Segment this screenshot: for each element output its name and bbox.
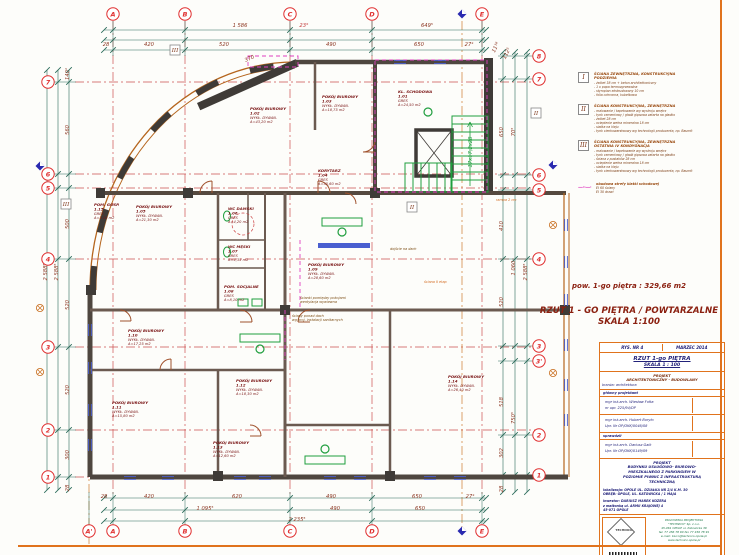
dim-text: 518 (499, 396, 505, 407)
svg-text:3: 3 (537, 342, 542, 350)
dim-text: 500 (65, 218, 71, 229)
room-label-1.07: WC MĘSKI1.07GRESA=4,35 m2 (227, 244, 251, 262)
dim-text: 27⁴ (466, 494, 476, 500)
person-2-line2: Upr. Nr OP/OKK/0046/08 (605, 424, 690, 430)
secondary-axis-marker (549, 369, 556, 376)
signature-cell-3 (692, 441, 721, 456)
svg-text:C: C (288, 527, 293, 535)
svg-text:A=35,60 m2: A=35,60 m2 (317, 182, 341, 186)
svg-text:1.04: 1.04 (318, 173, 328, 178)
room-label-1.06: WC DAMSKI1.06GRESA=4,20 m2 (227, 206, 254, 224)
annotation-note: rampa 2 cm (496, 198, 517, 202)
svg-text:wentylacja wywiewna: wentylacja wywiewna (300, 300, 337, 304)
svg-text:ściana II etap: ściana II etap (424, 280, 447, 284)
dim-text: 300 (65, 449, 71, 460)
person-2-name: mgr inż.arch. Hubert Boryło Upr. Nr OP/O… (603, 416, 692, 431)
title-line-2: SKALA 1:100 (538, 317, 720, 328)
dim-text: 28 (65, 484, 71, 491)
annotation-note: ściana II etap (424, 280, 447, 284)
dim-text: 520 (499, 296, 505, 307)
svg-text:A': A' (84, 527, 92, 535)
svg-text:A=4,20 m2: A=4,20 m2 (227, 220, 249, 224)
axis-bubble-left-7: 7 (42, 76, 54, 88)
svg-text:E: E (480, 10, 485, 18)
dim-text: 650 (415, 506, 426, 512)
role-checker: sprawdził (600, 433, 724, 440)
svg-text:A=12,60 m2: A=12,60 m2 (212, 454, 236, 458)
svg-text:4: 4 (537, 255, 542, 263)
svg-text:5: 5 (46, 184, 51, 192)
note-texts: ścianki pomiędzy pokojamiwentylacja wywi… (292, 198, 517, 322)
svg-text:1.11: 1.11 (112, 405, 122, 410)
axis-bubble-right-6: 6 (533, 169, 545, 181)
floor-area-text: pow. 1-go piętra : 329,66 m2 (538, 282, 720, 290)
svg-text:1.02: 1.02 (250, 111, 260, 116)
project-description: PROJEKT BUDYNKU USŁUGOWO- BIUROWO- MIESZ… (600, 459, 724, 516)
axis-bubble-right-8: 8 (533, 50, 545, 62)
magenta-dash-symbol: —··—· (578, 185, 591, 191)
title-block-header: RYS. NR 4 MARZEC 2014 (600, 343, 724, 353)
dim-text: 2 588⁵ (43, 264, 49, 281)
columns (86, 188, 570, 481)
legend-bullet: - tynk cienkowarstwowy wg technologii pr… (594, 129, 730, 133)
dim-text: 650 (499, 126, 505, 137)
axis-bubble-bottom-B: B (179, 525, 191, 537)
svg-text:5: 5 (537, 186, 542, 194)
axis-bubble-bottom-D: D (366, 525, 378, 537)
wall-type-marks: IIIIIIIIII (61, 45, 541, 212)
svg-text:A=18,75 m2: A=18,75 m2 (321, 108, 345, 112)
legend-symbol-II: II (578, 104, 589, 115)
drawing-title: RZUT 1-go PIĘTRA (602, 356, 722, 362)
svg-text:3': 3' (536, 357, 543, 365)
dim-text: 2 235⁵ (289, 517, 306, 523)
svg-text:1: 1 (537, 471, 542, 479)
svg-text:A=28,60 m2: A=28,60 m2 (307, 276, 331, 280)
svg-text:A=18,30 m2: A=18,30 m2 (235, 392, 259, 396)
svg-text:wg proj. instalacji sanitarnyc: wg proj. instalacji sanitarnych (292, 318, 343, 322)
dim-text: 650 (414, 42, 425, 48)
axis-bubble-right-1: 1 (533, 469, 545, 481)
svg-text:6: 6 (46, 170, 51, 178)
desc-body: BUDYNKU USŁUGOWO- BIUROWO- MIESZKALNEGO … (603, 465, 721, 484)
svg-text:III: III (62, 202, 70, 208)
svg-text:1.09: 1.09 (308, 267, 318, 272)
wall-legend: IŚCIANA ZEWNĘTRZNA, KONSTRUKCYJNAPODZIEM… (578, 72, 730, 194)
svg-text:A=43,20 m2: A=43,20 m2 (249, 120, 273, 124)
axis-bubble-left-3: 3 (42, 341, 54, 353)
title-block: RYS. NR 4 MARZEC 2014 RZUT 1-go PIĘTRA S… (599, 342, 725, 555)
dim-text: 520 (219, 42, 230, 48)
axis-bubble-bottom-A': A' (83, 525, 95, 537)
drawing-sheet: 1 586649⁵23°2842052049065027⁴37028420620… (0, 0, 739, 555)
svg-text:D: D (369, 10, 375, 18)
axis-bubble-bottom-A: A (107, 525, 119, 537)
dim-text: 27⁴ (465, 42, 475, 48)
title-line-1: RZUT 1 - GO PIĘTRA / POWTARZALNE (538, 306, 720, 317)
axis-bubble-right-3: 3 (533, 340, 545, 352)
benchmark-marker (36, 162, 45, 171)
outer-walls (90, 58, 569, 477)
benchmark-marker (458, 527, 467, 536)
room-label-1.10: POKÓJ BIUROWY1.10WYKŁ. DYWAN.A=17,25 m2 (127, 328, 165, 346)
secondary-axis-marker (36, 304, 43, 311)
dim-text: 302 (499, 448, 505, 458)
sheet-border-bottom (18, 545, 722, 547)
desc-body-4: TECHNICZNĄ (603, 480, 721, 485)
svg-text:1.13: 1.13 (213, 445, 223, 450)
annotation-note: ściany ponad dachwg proj. instalacji san… (292, 314, 343, 322)
svg-text:rampa 2 cm: rampa 2 cm (496, 198, 517, 202)
svg-text:1.14: 1.14 (448, 379, 458, 384)
dim-text: 28 (101, 494, 108, 500)
dimension-chains (47, 30, 527, 521)
svg-text:7: 7 (537, 75, 542, 83)
svg-text:C: C (288, 10, 293, 18)
person-1: mgr inż.arch. Wiesław Fołta nr upr. 225/… (600, 397, 724, 415)
dim-text: 140¹ (65, 68, 71, 80)
dim-text: 750⁵ (511, 412, 517, 424)
annotation-note: ścianki pomiędzy pokojamiwentylacja wywi… (300, 296, 346, 304)
axis-bubble-left-1: 1 (42, 471, 54, 483)
svg-text:2: 2 (46, 426, 51, 434)
dim-text: 620 (232, 494, 243, 500)
svg-text:1.12: 1.12 (236, 383, 246, 388)
svg-text:2: 2 (537, 431, 542, 439)
reception-counter (318, 243, 370, 248)
room-label-1.11: POKÓJ BIUROWY1.11WYKŁ. DYWAN.A=15,80 m2 (111, 400, 149, 418)
axis-bubble-left-6: 6 (42, 168, 54, 180)
dim-text: 11¹⁸ (491, 41, 501, 53)
room-labels: KL. SCHODOWA1.01GRESA=24,50 m2POKÓJ BIUR… (93, 89, 485, 458)
dim-text: 520 (65, 299, 71, 310)
dim-text: 420 (144, 494, 155, 500)
legend-symbol-III: III (578, 140, 589, 151)
wall-type-mark-II: II (407, 202, 417, 212)
axis-bubble-left-2: 2 (42, 424, 54, 436)
svg-text:E: E (480, 527, 485, 535)
person-3-line2: Upr. Nr OP/OKK/0149/09 (605, 449, 690, 455)
svg-text:dojście na dach: dojście na dach (390, 247, 416, 251)
drawing-scale: SKALA 1 : 100 (602, 363, 722, 368)
benchmark-marker (458, 10, 467, 19)
secondary-axis-marker (36, 368, 43, 375)
person-1-line2: nr upr. 225/94/OP (605, 406, 690, 412)
signature-cell-1 (692, 398, 721, 413)
axis-bubble-right-3': 3' (533, 355, 545, 367)
axis-bubble-bottom-C: C (284, 525, 296, 537)
dim-text: 28 (499, 485, 505, 492)
svg-text:B: B (183, 527, 188, 535)
room-label-1.09: POKÓJ BIUROWY1.09WYKŁ. DYWAN.A=28,60 m2 (307, 262, 345, 280)
axis-bubble-top-A: A (107, 8, 119, 20)
drawing-summary: pow. 1-go piętra : 329,66 m2 RZUT 1 - GO… (538, 282, 720, 327)
dim-text: 23° (299, 23, 309, 29)
company-row: TECHNICO PRACOWNIA PROJEKTOWA"TECHNICO" … (600, 515, 724, 555)
person-1-name: mgr inż.arch. Wiesław Fołta nr upr. 225/… (603, 398, 692, 413)
benchmark-marker (549, 161, 558, 170)
legend-item-I: IŚCIANA ZEWNĘTRZNA, KONSTRUKCYJNAPODZIEM… (578, 72, 730, 97)
svg-text:3: 3 (46, 343, 51, 351)
svg-text:D: D (369, 527, 375, 535)
project-kind: PROJEKT ARCHITEKTONICZNY - BUDOWLANY bra… (600, 372, 724, 390)
svg-text:1.15: 1.15 (94, 207, 104, 212)
legend-item-III: IIIŚCIANA KONSTRUKCYJNA, ZEWNĘTRZNAOSTAT… (578, 140, 730, 173)
logo-diamond-icon (607, 518, 635, 546)
dim-text: 520 (65, 384, 71, 395)
legend-bullet: - folia ochronna, kubełkowa (594, 93, 730, 97)
fire-separation-note: —··—·obudowa strefy klatki schodowejEI 6… (578, 182, 730, 194)
dim-text: 1 060 (511, 260, 517, 276)
dim-text: 420 (144, 42, 155, 48)
dim-text: 410 (499, 220, 505, 231)
dimension-ticks (42, 21, 533, 525)
staircase-elevator (405, 116, 488, 192)
wall-type-mark-III: III (170, 45, 180, 55)
dim-text: 560 (65, 124, 71, 135)
room-label-1.02: POKÓJ BIUROWY1.02WYKŁ. DYWAN.A=43,20 m2 (249, 106, 287, 124)
axis-bubble-right-2: 2 (533, 429, 545, 441)
company-logo: TECHNICO (602, 517, 646, 555)
axis-bubble-bottom-E: E (476, 525, 488, 537)
axis-bubble-left-4: 4 (42, 253, 54, 265)
axis-bubble-right-5: 5 (533, 184, 545, 196)
wall-type-mark-III: III (61, 199, 71, 209)
legend-item-II: IIŚCIANA KONSTRUKCYJNA, ZEWNĘTRZNA- malo… (578, 104, 730, 133)
room-label-1.04: KORYTARZ1.04GRESA=35,60 m2 (317, 168, 341, 186)
svg-text:8: 8 (537, 52, 542, 60)
axis-bubble-top-B: B (179, 8, 191, 20)
title-block-title: RZUT 1-go PIĘTRA SKALA 1 : 100 (600, 353, 724, 372)
signature-cell-2 (692, 416, 721, 431)
dim-text: 649⁵ (421, 23, 433, 29)
svg-text:A=4,35 m2: A=4,35 m2 (227, 258, 249, 262)
dim-text: 28 (103, 42, 110, 48)
sheet-border-right (720, 0, 722, 555)
legend-bullet: - tynk cienkowarstwowy wg technologii pr… (594, 169, 730, 173)
svg-text:A=17,25 m2: A=17,25 m2 (127, 342, 151, 346)
company-address-line: www.technico.opole.pl (649, 539, 719, 543)
svg-text:1.05: 1.05 (136, 209, 146, 214)
dim-text: 2 588⁵ (54, 264, 60, 281)
svg-text:A=26,40 m2: A=26,40 m2 (447, 388, 471, 392)
svg-text:A=3,10 m2: A=3,10 m2 (93, 216, 115, 220)
svg-text:A=24,50 m2: A=24,50 m2 (397, 103, 421, 107)
svg-text:II: II (409, 205, 415, 211)
dim-text: 1 586 (233, 23, 249, 29)
svg-text:II: II (533, 111, 539, 117)
dim-text: 370 (244, 54, 256, 64)
svg-text:A=15,80 m2: A=15,80 m2 (111, 414, 135, 418)
location-2: OBRĘB: OPOLE, UL. KATOWICKA / 1 MAJA (603, 492, 721, 496)
svg-text:1.01: 1.01 (398, 94, 408, 99)
svg-text:III: III (171, 48, 179, 54)
location-block: lokalizacja: OPOLE UL. DZIAŁKA NR 2/4 K.… (603, 488, 721, 497)
dim-text: 1 095⁵ (197, 506, 214, 512)
room-label-1.13: POKÓJ BIUROWY1.13WYKŁ. DYWAN.A=12,60 m2 (212, 440, 250, 458)
fire-note-doors: EI 30 drzwi (596, 190, 730, 194)
logo-text: TECHNICO (603, 528, 645, 532)
investor-block: inwestor: DARIUSZ MAREK KOZERA z małżonk… (603, 499, 721, 512)
svg-text:1.07: 1.07 (228, 249, 238, 254)
svg-text:1.03: 1.03 (322, 99, 332, 104)
room-label-1.12: POKÓJ BIUROWY1.12WYKŁ. DYWAN.A=18,30 m2 (235, 378, 273, 396)
dim-text: 17x17,2x28 (468, 136, 474, 168)
svg-text:1: 1 (46, 473, 51, 481)
company-address: PRACOWNIA PROJEKTOWA"TECHNICO" Sp. z o.o… (646, 517, 722, 555)
room-label-1.01: KL. SCHODOWA1.01GRESA=24,50 m2 (397, 89, 432, 107)
svg-text:A: A (109, 10, 115, 18)
room-label-1.03: POKÓJ BIUROWY1.03WYKŁ. DYWAN.A=18,75 m2 (321, 94, 359, 112)
person-3: mgr inż.arch. Dariusz Gaik Upr. Nr OP/OK… (600, 440, 724, 458)
axis-grid-lines (75, 21, 545, 545)
drawing-date: MARZEC 2014 (663, 344, 722, 351)
wall-type-mark-II: II (531, 108, 541, 118)
drawing-main-title: RZUT 1 - GO PIĘTRA / POWTARZALNE SKALA 1… (538, 306, 720, 327)
person-3-name: mgr inż.arch. Dariusz Gaik Upr. Nr OP/OK… (603, 441, 692, 456)
secondary-axis-marker (549, 221, 556, 228)
dim-text: 490 (330, 506, 341, 512)
investor-3: 45-071 OPOLE (603, 508, 721, 512)
axis-bubble-right-4: 4 (533, 253, 545, 265)
svg-text:A: A (109, 527, 115, 535)
svg-text:7: 7 (46, 78, 51, 86)
axis-bubble-left-5: 5 (42, 182, 54, 194)
axis-bubble-top-E: E (476, 8, 488, 20)
axis-bubble-right-7: 7 (533, 73, 545, 85)
drawing-number: RYS. NR 4 (603, 344, 663, 351)
dim-text: 650 (412, 494, 423, 500)
axis-bubbles: ABCDEA'ABCDE76543218765433'21 (36, 8, 558, 537)
axis-bubble-top-C: C (284, 8, 296, 20)
dim-text: 2 588⁵ (523, 264, 529, 281)
person-2: mgr inż.arch. Hubert Boryło Upr. Nr OP/O… (600, 415, 724, 433)
svg-text:B: B (183, 10, 188, 18)
svg-text:A=21,30 m2: A=21,30 m2 (135, 218, 159, 222)
svg-text:1.06: 1.06 (228, 211, 238, 216)
branch-label: branża: architektura (602, 383, 722, 387)
axis-bubble-top-D: D (366, 8, 378, 20)
svg-text:4: 4 (46, 255, 51, 263)
room-label-1.05: POKÓJ BIUROWY1.05WYKŁ. DYWAN.A=21,30 m2 (135, 204, 173, 222)
room-label-1.14: POKÓJ BIUROWY1.14WYKŁ. DYWAN.A=26,40 m2 (447, 374, 485, 392)
annotation-note: dojście na dach (390, 247, 416, 251)
svg-text:1.08: 1.08 (224, 289, 234, 294)
project-kind-2: ARCHITEKTONICZNY - BUDOWLANY (602, 378, 722, 382)
dim-text: 70⁵ (511, 128, 517, 137)
dim-text: 490 (326, 494, 337, 500)
svg-text:6: 6 (537, 171, 542, 179)
role-main-designer: główny projektant (600, 390, 724, 397)
dim-text: 112⁵ (502, 47, 513, 60)
svg-text:1.10: 1.10 (128, 333, 138, 338)
dim-text: 490 (326, 42, 337, 48)
legend-symbol-I: I (578, 72, 589, 83)
svg-text:A=8,10 m2: A=8,10 m2 (223, 298, 245, 302)
